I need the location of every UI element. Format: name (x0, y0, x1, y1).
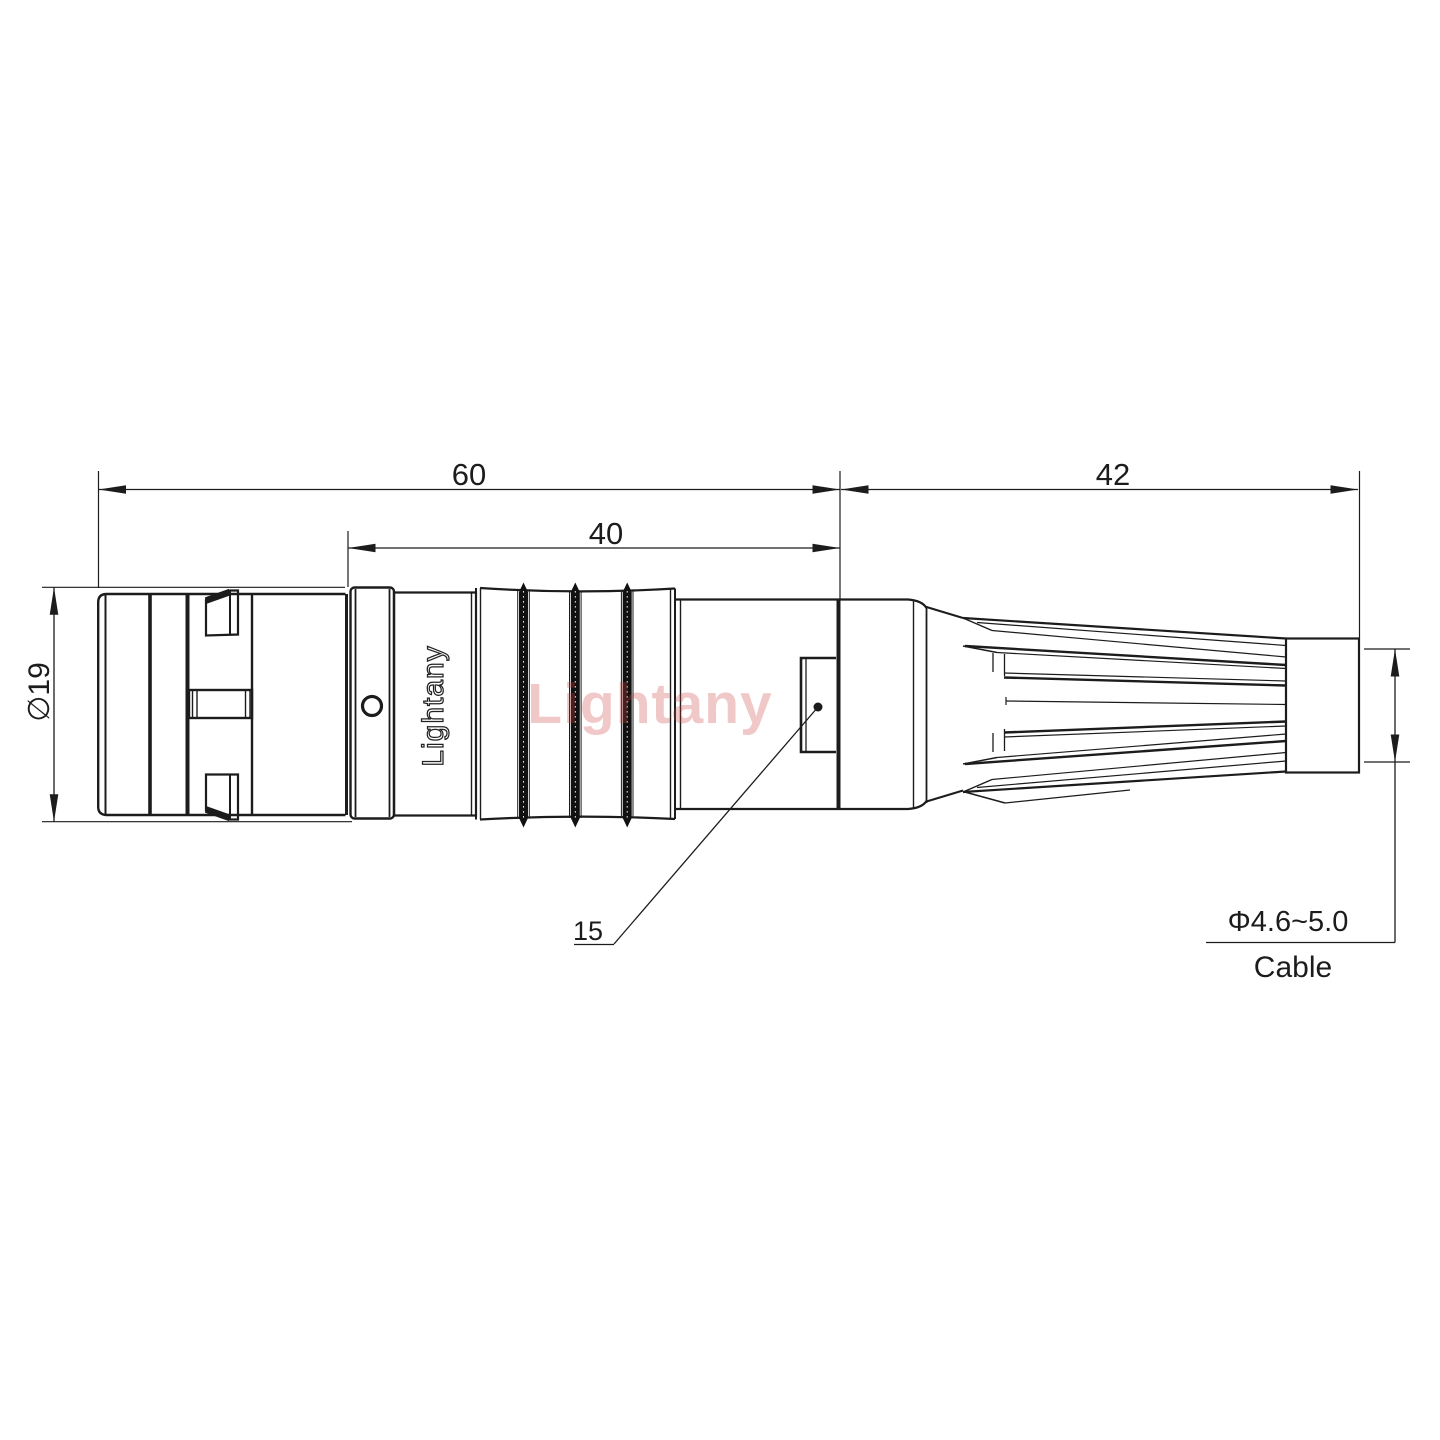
svg-text:15: 15 (573, 916, 603, 946)
svg-text:42: 42 (1096, 457, 1130, 492)
svg-text:Cable: Cable (1254, 951, 1332, 984)
svg-text:∅19: ∅19 (23, 662, 56, 722)
svg-text:Φ4.6~5.0: Φ4.6~5.0 (1228, 906, 1349, 938)
svg-text:60: 60 (452, 457, 486, 492)
svg-text:Lightany: Lightany (417, 645, 450, 766)
svg-text:40: 40 (589, 516, 623, 551)
svg-text:Lightany: Lightany (527, 672, 773, 736)
